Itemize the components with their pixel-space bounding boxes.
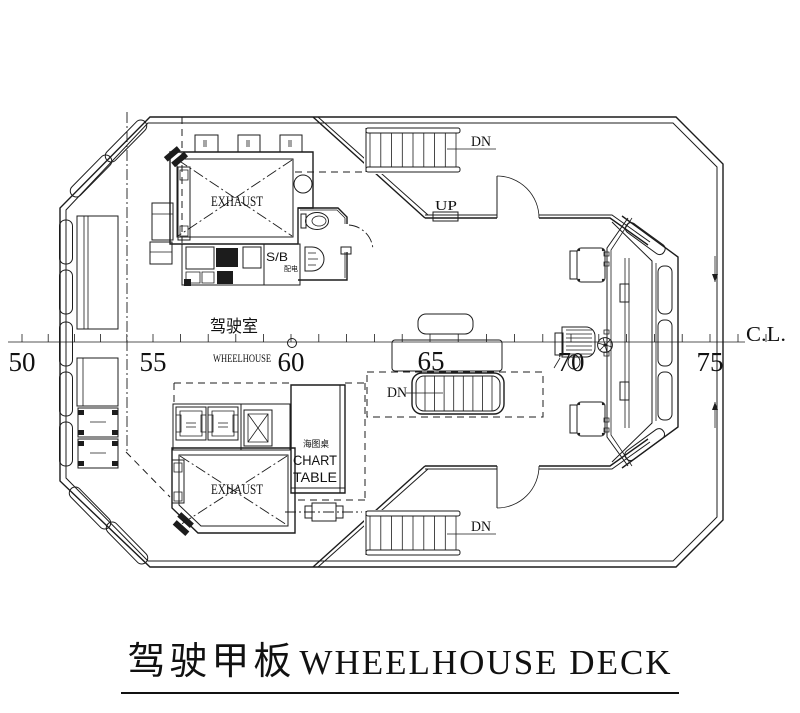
table-65 — [392, 340, 502, 371]
centerline-label: C.L. — [746, 322, 786, 346]
armchair — [208, 407, 238, 440]
dn-bottom-label: DN — [471, 519, 491, 535]
frame-label-55: 55 — [140, 347, 167, 377]
fan-bracket-bottom — [171, 512, 195, 536]
chart-table-label-cn: 海图桌 — [303, 438, 329, 449]
helm-wheel — [598, 338, 613, 353]
dn-mid-label: DN — [387, 385, 407, 401]
casing-vent — [294, 175, 312, 193]
wheelhouse-label-en: WHEELHOUSE — [213, 351, 271, 365]
steering-gear: 70 — [554, 327, 612, 377]
casing-top — [150, 135, 373, 286]
sb-label: S/B — [266, 250, 288, 264]
sheet-title: 驾驶甲板 WHEELHOUSE DECK — [0, 630, 800, 694]
sheet-title-en: WHEELHOUSE DECK — [299, 643, 672, 682]
frame-label-60: 60 — [278, 347, 305, 377]
up-label: UP — [435, 199, 457, 214]
pedestal-box — [285, 503, 362, 521]
frame-label-65: 65 — [418, 346, 445, 376]
dumbwaiter — [244, 410, 272, 446]
sheet-title-cn: 驾驶甲板 — [127, 641, 295, 683]
fan-bracket-top — [164, 145, 188, 169]
wheelhouse-label-cn: 驾驶室 — [210, 317, 258, 336]
reference-lines — [126, 112, 400, 497]
toilet — [306, 213, 329, 230]
wheelhouse-deck-plan: 70 50 55 60 65 75 C.L. 驾驶室 WHEELHOUSE EX… — [0, 0, 800, 713]
centre-furniture — [392, 314, 502, 371]
exhaust-top-label: EXHAUST — [211, 194, 263, 210]
frame-label-75: 75 — [697, 347, 724, 377]
exhaust-bottom-label: EXHAUST — [211, 482, 263, 498]
chart-table-label-2: TABLE — [293, 469, 337, 485]
bench — [418, 314, 473, 334]
armchair — [176, 407, 206, 440]
dn-top-label: DN — [471, 134, 491, 150]
pilot-chair — [570, 248, 605, 282]
frame-label-50: 50 — [9, 347, 36, 377]
chart-table-label-1: CHART — [293, 452, 337, 468]
deck-plan-drawing: 70 50 55 60 65 75 C.L. 驾驶室 WHEELHOUSE EX… — [0, 0, 800, 713]
roof-boxes — [195, 135, 302, 152]
sb-sublabel-cn: 配电 — [284, 264, 298, 273]
pilot-chair — [570, 402, 605, 436]
